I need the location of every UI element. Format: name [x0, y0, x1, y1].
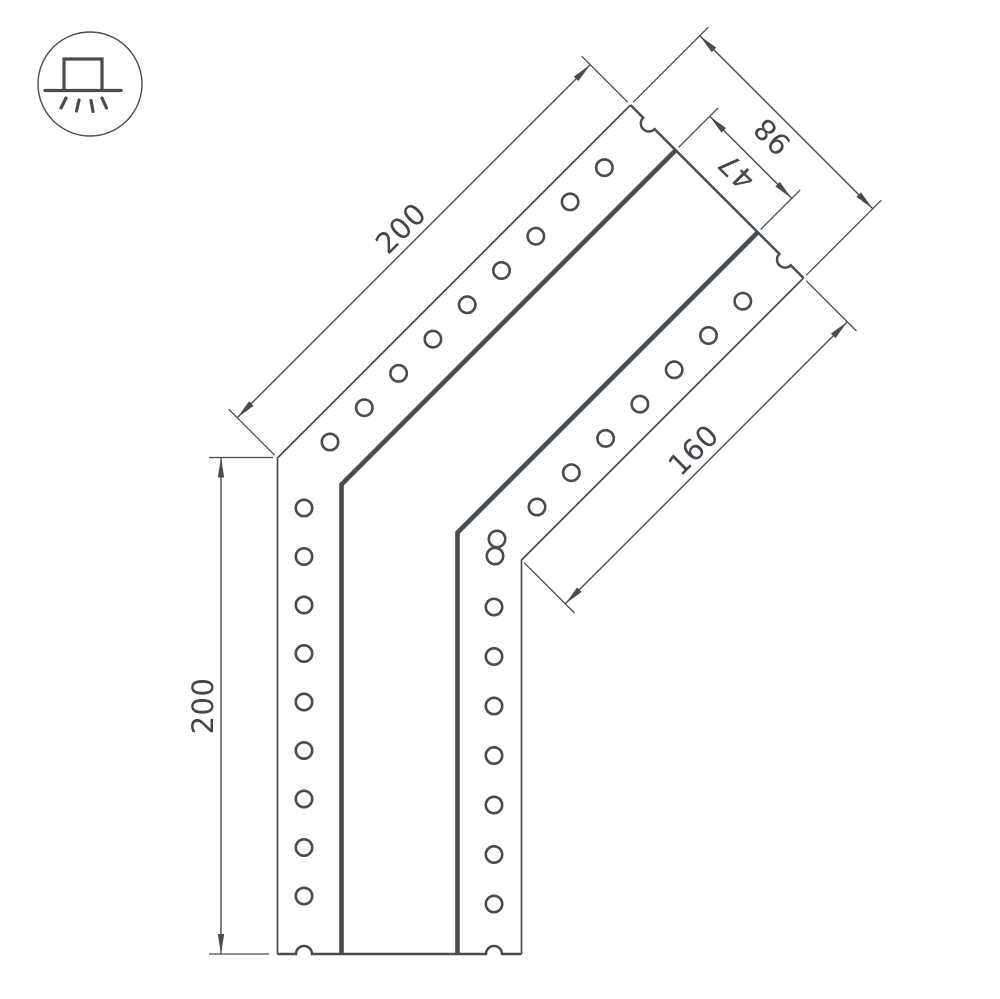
hole [296, 742, 312, 758]
hole [493, 262, 509, 278]
extension-line [633, 27, 708, 102]
hole [597, 430, 613, 446]
hole [322, 434, 338, 450]
hole [562, 194, 578, 210]
channel-wall-right [458, 232, 758, 954]
mounting-holes [296, 159, 751, 912]
extension-line [582, 56, 628, 102]
profile-bottom-edge [278, 946, 522, 954]
extension-line [806, 200, 881, 275]
profile-body [278, 105, 804, 954]
dimension-line [237, 65, 590, 418]
hole [489, 531, 505, 547]
hole [296, 597, 312, 613]
hole [486, 846, 502, 862]
hole [487, 548, 503, 564]
hole [296, 888, 312, 904]
technical-drawing: 200 200 98 47 160 [0, 0, 1000, 999]
hole [486, 648, 502, 664]
hole [486, 698, 502, 714]
dimension-label-inner-edge: 160 [661, 418, 725, 482]
extension-line [524, 563, 574, 613]
dimension-label-channel-width: 47 [711, 146, 762, 197]
dimension-label-leg-left: 200 [186, 678, 220, 735]
dimension-leg-left: 200 [186, 458, 273, 955]
drawing-canvas: 200 200 98 47 160 [0, 0, 1000, 999]
hole [528, 228, 544, 244]
hole [529, 499, 545, 515]
hole [596, 159, 612, 175]
dimension-label-leg-top: 200 [369, 196, 433, 260]
hole [459, 297, 475, 313]
dimension-inner-edge: 160 [524, 281, 856, 613]
extension-line [806, 281, 856, 331]
hole [486, 797, 502, 813]
mount-type-icon [38, 32, 142, 136]
hole [425, 331, 441, 347]
hole [296, 694, 312, 710]
profile-outline-right [522, 278, 804, 954]
extension-line [761, 190, 801, 230]
extension-line [229, 409, 275, 455]
dimension-end-width: 98 [633, 27, 881, 275]
hole [296, 791, 312, 807]
hole [486, 896, 502, 912]
dimension-line [565, 322, 847, 604]
profile-outline-left [278, 105, 631, 954]
hole [666, 362, 682, 378]
hole [486, 747, 502, 763]
hole [296, 839, 312, 855]
hole [563, 465, 579, 481]
surface-mounted-luminaire-icon [45, 59, 121, 112]
extension-line [679, 108, 719, 148]
hole [735, 293, 751, 309]
hole [486, 599, 502, 615]
dimension-label-end-width: 98 [747, 111, 798, 162]
hole [356, 400, 372, 416]
icon-circle [38, 32, 142, 136]
hole [700, 327, 716, 343]
hole [390, 365, 406, 381]
hole [632, 396, 648, 412]
hole [296, 645, 312, 661]
hole [296, 548, 312, 564]
hole [296, 500, 312, 516]
